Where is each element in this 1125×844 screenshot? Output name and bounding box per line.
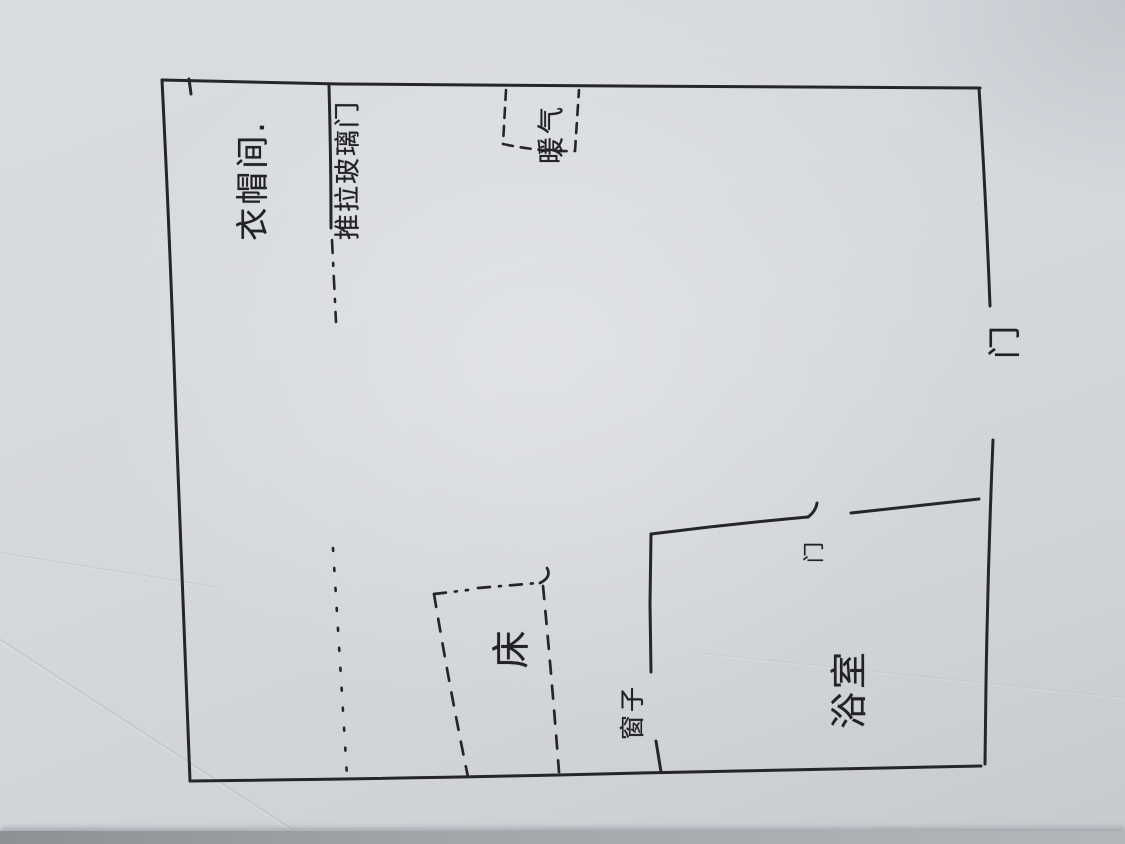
heater-label: 暖气: [530, 104, 569, 164]
sliding-glass-door-label: 推拉玻璃门: [328, 100, 365, 240]
bed-label: 床: [481, 627, 536, 668]
window-label: 窗子: [613, 684, 649, 740]
bathroom-door-label: 门: [798, 539, 828, 563]
bathroom-label: 浴室: [819, 649, 873, 729]
table-edge: [0, 831, 1125, 844]
closet-zone-label: 衣帽间.: [226, 119, 274, 241]
floor-plan-photo: 衣帽间. 推拉玻璃门 暖气 门 床 窗子 门 浴室: [0, 0, 1125, 844]
bed-dashed-outline: [434, 568, 559, 777]
entry-door-label: 门: [978, 323, 1026, 359]
